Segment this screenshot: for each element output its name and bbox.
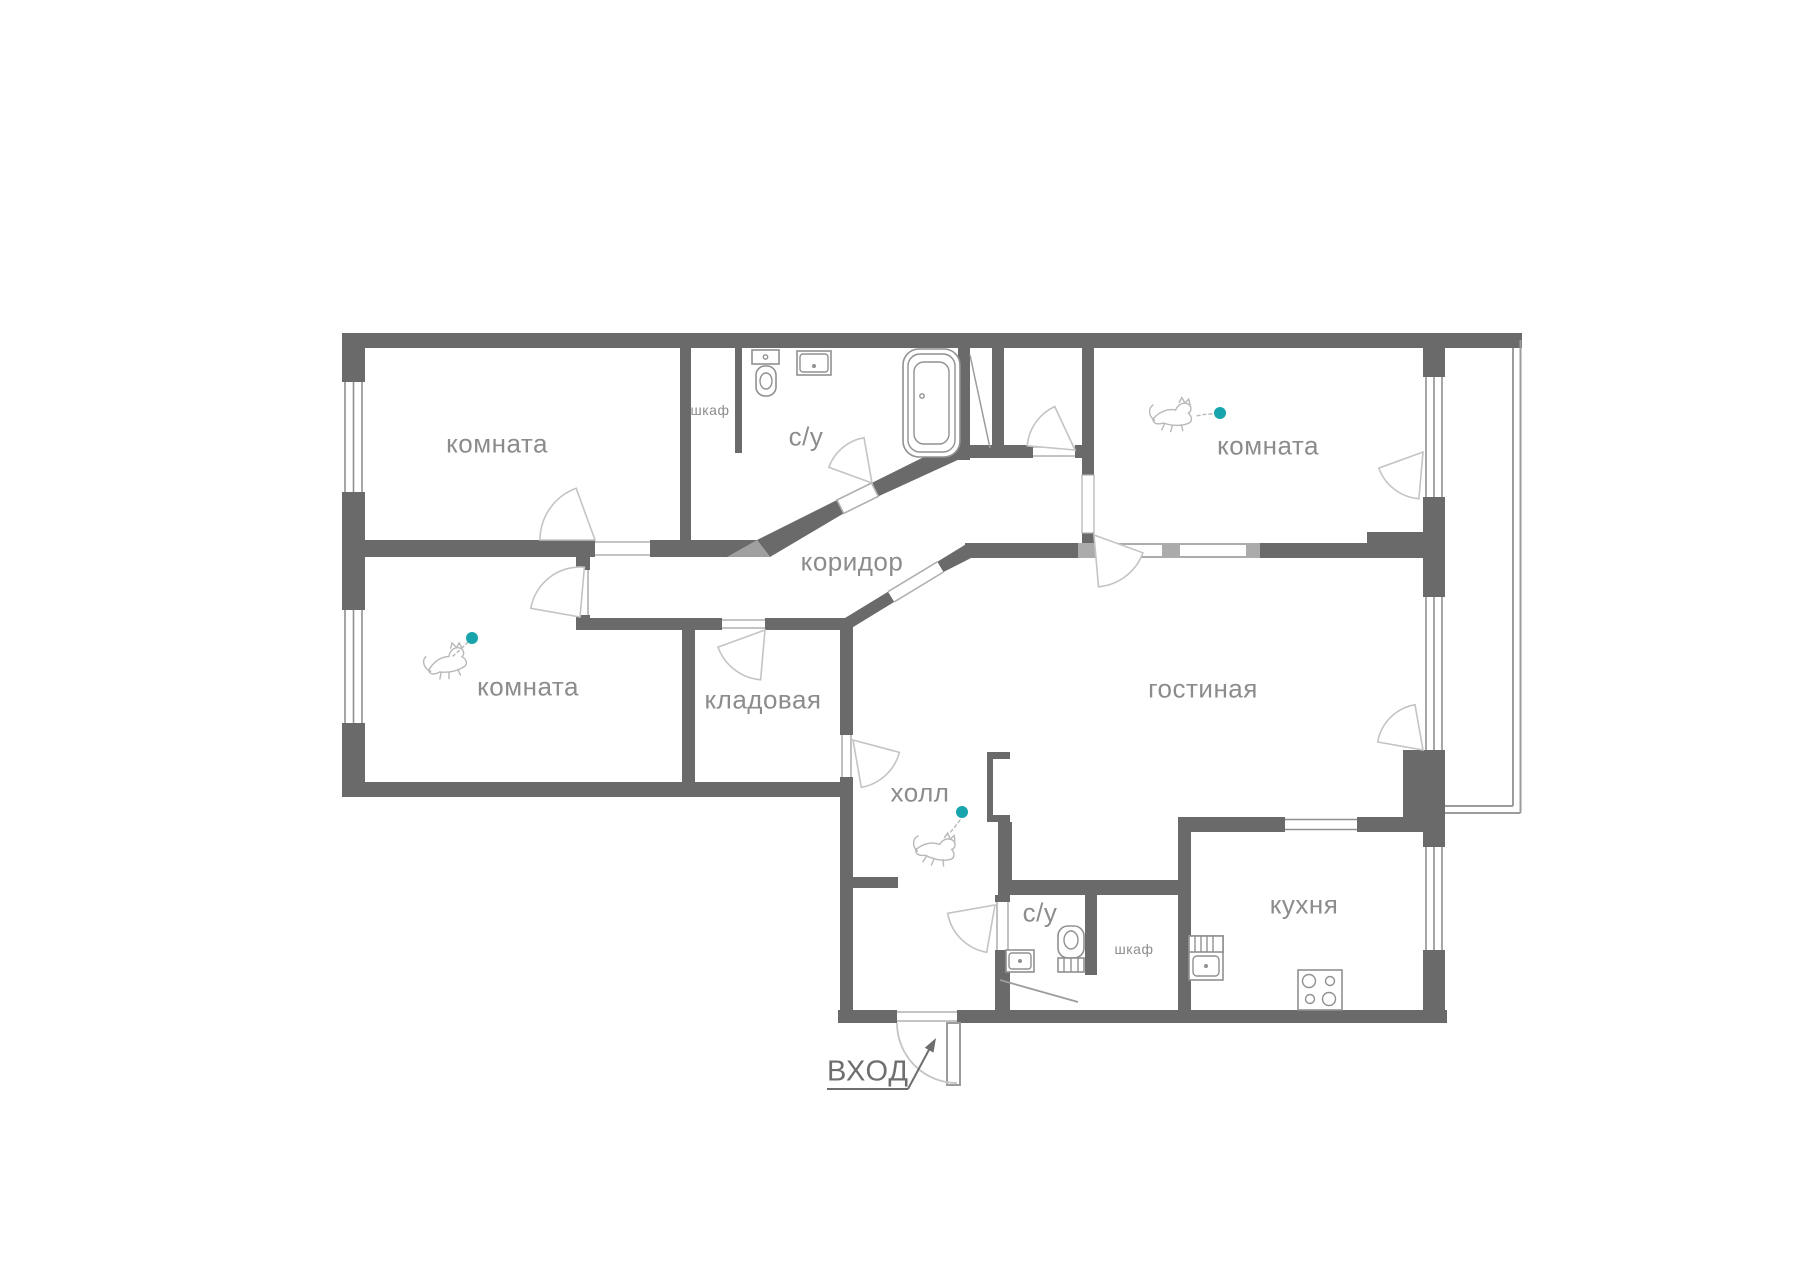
label-bathroom-bottom: с/у [1023,898,1058,929]
label-corridor: коридор [801,547,904,578]
panorama-dot-right-room[interactable] [1214,407,1226,419]
panorama-dot-left-room[interactable] [466,632,478,644]
wall-top [342,333,1522,348]
balcony-outline [1445,340,1521,813]
label-hall: холл [891,778,950,809]
door-swing-room-top-right [1094,535,1143,587]
window-left-top [342,382,365,492]
wall-bottom-entry-right [957,1010,1447,1023]
label-room-left: комната [477,672,579,703]
door-swing-storage [718,630,765,680]
label-living-room: гостиная [1148,674,1258,705]
dot-trail-right [1196,414,1212,416]
stove-icon [1298,970,1342,1010]
window-right-room [1423,377,1445,497]
kitchen-sink-icon [1189,936,1223,980]
label-closet-bottom: шкаф [1115,941,1154,957]
label-room-top-right: комната [1217,431,1319,462]
label-room-top-left: комната [446,429,548,460]
bathtub-icon [903,349,960,457]
entrance-door-leaf [947,1023,960,1085]
label-closet-top: шкаф [691,402,730,418]
window-kitchen [1423,847,1445,950]
wall-bottom-left-section [342,782,853,797]
kitchen-pass-through-window [1285,817,1357,832]
label-kitchen: кухня [1270,890,1339,921]
cat-sketch-right-room [1148,395,1193,434]
bathroom-door-sill [837,483,878,513]
dot-trail-hall [949,820,960,834]
toilet-bottom-icon [1058,926,1084,972]
door-swing-bathroom-bottom [948,905,995,952]
wall-bottom-entry-left [838,1010,897,1023]
entrance-arrow-line [908,1046,931,1089]
label-storage: кладовая [705,685,822,716]
door-swing-bathroom-top [829,438,872,483]
window-left-bottom [342,610,365,723]
label-entrance: ВХОД [827,1056,909,1089]
door-swing-balcony-living [1378,705,1423,750]
door-swing-anteroom [1027,407,1075,451]
sink-top-icon [797,351,831,375]
cat-sketch-left-room [421,641,468,682]
door-swing-balcony-room [1379,452,1423,499]
door-swing-room-left [531,567,585,617]
entrance-arrow-head [925,1038,936,1053]
door-swing-room-top-left [540,488,595,540]
panorama-dot-hall[interactable] [956,806,968,818]
sink-bottom-icon [1006,950,1034,972]
duct-line [970,355,990,448]
label-bathroom-top: с/у [789,422,824,453]
bathroom-bottom-door-leaf [1000,980,1078,1002]
window-living-room [1423,597,1445,750]
toilet-top-icon [752,350,779,396]
floor-plan-page: комната шкаф с/у комната коридор комната… [0,0,1810,1280]
windows [342,377,1445,950]
right-room-door-sill [1082,475,1094,533]
cat-sketch-hall [909,825,959,869]
